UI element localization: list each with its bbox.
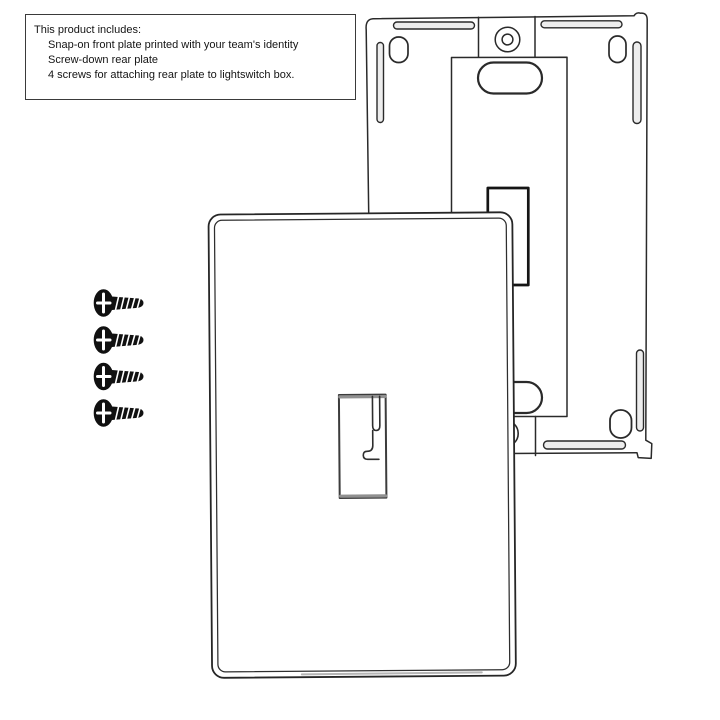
info-box-item: 4 screws for attaching rear plate to lig…: [34, 68, 349, 83]
info-box-item: Snap-on front plate printed with your te…: [34, 38, 349, 53]
front-plate: [208, 212, 515, 678]
slot-top-right: [541, 21, 622, 28]
screw-2: [95, 327, 144, 353]
vslot-left: [377, 43, 384, 123]
product-illustration: This product includes: Snap-on front pla…: [0, 0, 720, 720]
screw-4: [95, 400, 144, 426]
screw-1: [95, 290, 144, 316]
info-box-item: Screw-down rear plate: [34, 53, 349, 68]
obround-opening-top: [478, 63, 542, 94]
toggle-switch-opening: [339, 395, 387, 498]
vslot-top-right: [633, 42, 641, 124]
info-box-title: This product includes:: [34, 23, 349, 38]
slot-bottom: [544, 441, 626, 449]
lightswitch-plate-diagram: [0, 0, 720, 720]
vslot-bottom-right: [637, 350, 644, 431]
screw-3: [95, 364, 144, 390]
info-box: This product includes: Snap-on front pla…: [25, 14, 356, 100]
mounting-screws: [95, 290, 144, 426]
slot-top-left: [394, 22, 475, 29]
